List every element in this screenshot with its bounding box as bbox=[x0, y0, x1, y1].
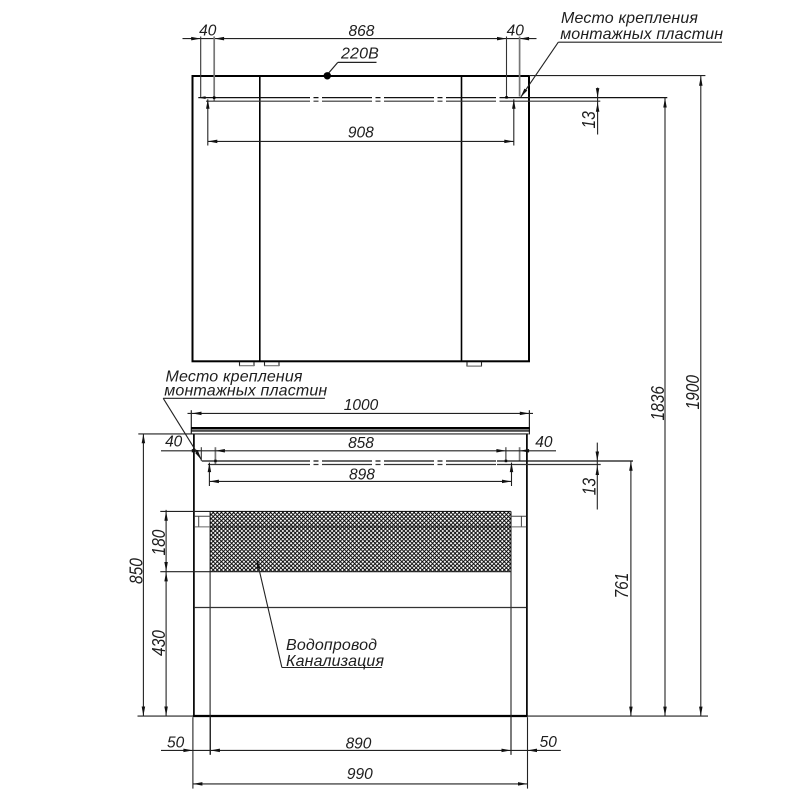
svg-text:220В: 220В bbox=[340, 46, 379, 63]
svg-text:1836: 1836 bbox=[648, 386, 668, 421]
svg-text:868: 868 bbox=[348, 23, 374, 40]
svg-text:430: 430 bbox=[149, 630, 169, 656]
svg-text:Водопровод: Водопровод bbox=[286, 637, 377, 654]
svg-text:990: 990 bbox=[347, 766, 373, 783]
svg-text:50: 50 bbox=[167, 735, 185, 752]
svg-text:40: 40 bbox=[507, 23, 525, 40]
svg-text:13: 13 bbox=[579, 111, 599, 129]
svg-text:1000: 1000 bbox=[344, 397, 379, 414]
svg-text:монтажных пластин: монтажных пластин bbox=[560, 26, 723, 43]
svg-text:40: 40 bbox=[535, 434, 553, 451]
svg-text:монтажных пластин: монтажных пластин bbox=[164, 383, 327, 400]
svg-text:890: 890 bbox=[346, 736, 372, 753]
svg-text:908: 908 bbox=[348, 124, 374, 141]
svg-text:40: 40 bbox=[165, 434, 183, 451]
svg-text:858: 858 bbox=[348, 435, 374, 452]
svg-text:50: 50 bbox=[540, 734, 558, 751]
svg-text:1900: 1900 bbox=[683, 375, 703, 410]
svg-text:13: 13 bbox=[579, 477, 599, 495]
svg-text:180: 180 bbox=[149, 529, 169, 555]
svg-text:850: 850 bbox=[126, 558, 146, 584]
svg-text:898: 898 bbox=[349, 467, 375, 484]
svg-text:761: 761 bbox=[612, 573, 632, 599]
svg-text:Место крепления: Место крепления bbox=[561, 10, 698, 27]
